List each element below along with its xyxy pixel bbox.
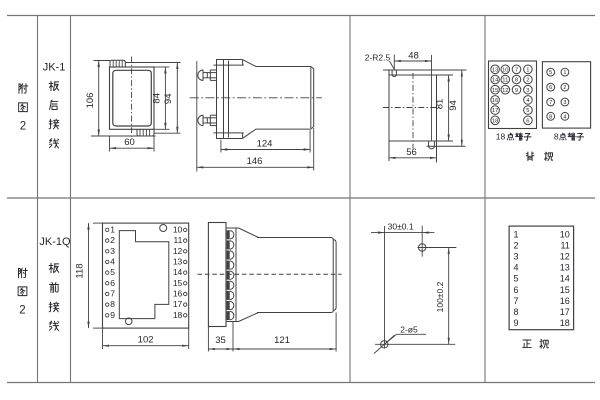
svg-text:5: 5: [514, 274, 519, 284]
svg-text:2: 2: [19, 305, 25, 317]
svg-text:7: 7: [515, 67, 518, 73]
svg-text:11: 11: [502, 78, 508, 84]
svg-text:JK-1: JK-1: [43, 62, 66, 74]
svg-text:102: 102: [138, 335, 154, 346]
svg-text:4: 4: [563, 114, 566, 120]
svg-text:18: 18: [560, 318, 570, 328]
svg-text:48: 48: [408, 51, 419, 62]
svg-text:3: 3: [563, 100, 566, 106]
svg-text:15: 15: [560, 285, 570, 295]
svg-text:JK-1Q: JK-1Q: [39, 236, 71, 248]
svg-text:14: 14: [173, 267, 183, 277]
svg-text:17: 17: [560, 307, 570, 317]
svg-text:81: 81: [435, 99, 446, 110]
svg-text:9: 9: [514, 318, 519, 328]
svg-text:9: 9: [110, 310, 115, 320]
svg-text:5: 5: [526, 108, 529, 114]
svg-text:6: 6: [514, 285, 519, 295]
svg-text:11: 11: [560, 240, 569, 250]
svg-text:1: 1: [526, 67, 529, 73]
svg-text:12: 12: [173, 246, 183, 256]
svg-text:8: 8: [515, 78, 518, 84]
svg-text:2: 2: [563, 85, 566, 91]
svg-text:8: 8: [554, 132, 559, 142]
svg-text:7: 7: [549, 100, 552, 106]
svg-text:100±0.2: 100±0.2: [435, 281, 445, 312]
svg-text:2-ø5: 2-ø5: [400, 325, 418, 335]
svg-text:2-R2.5: 2-R2.5: [365, 53, 391, 63]
svg-text:14: 14: [492, 78, 499, 84]
svg-text:118: 118: [74, 263, 85, 278]
svg-text:16: 16: [173, 289, 183, 299]
svg-text:2: 2: [526, 78, 529, 84]
svg-text:1: 1: [110, 225, 115, 235]
svg-text:18: 18: [173, 310, 183, 320]
svg-text:4: 4: [110, 257, 115, 267]
svg-text:3: 3: [514, 252, 519, 262]
svg-text:6: 6: [549, 85, 552, 91]
svg-text:8: 8: [549, 114, 552, 120]
svg-text:9: 9: [515, 88, 518, 94]
svg-text:5: 5: [549, 70, 552, 76]
svg-text:1: 1: [563, 70, 566, 76]
svg-text:3: 3: [526, 88, 529, 94]
svg-text:35: 35: [215, 335, 226, 346]
svg-text:121: 121: [274, 335, 290, 346]
svg-text:2: 2: [110, 235, 115, 245]
svg-text:3: 3: [110, 246, 115, 256]
svg-text:13: 13: [560, 263, 570, 273]
svg-text:1: 1: [514, 229, 519, 239]
svg-text:17: 17: [173, 299, 183, 309]
svg-text:94: 94: [163, 94, 174, 105]
svg-text:56: 56: [406, 147, 417, 158]
svg-text:15: 15: [173, 278, 183, 288]
svg-text:13: 13: [173, 257, 183, 267]
svg-text:8: 8: [110, 299, 115, 309]
svg-text:2: 2: [20, 121, 26, 133]
svg-text:94: 94: [448, 100, 459, 111]
svg-text:84: 84: [151, 93, 162, 104]
svg-text:15: 15: [492, 88, 498, 94]
svg-text:5: 5: [110, 267, 115, 277]
svg-text:16: 16: [560, 296, 570, 306]
svg-text:8: 8: [514, 307, 519, 317]
svg-text:124: 124: [257, 138, 273, 149]
svg-text:2: 2: [514, 240, 519, 250]
svg-text:6: 6: [110, 278, 115, 288]
svg-text:7: 7: [110, 289, 115, 299]
svg-text:106: 106: [85, 93, 96, 109]
svg-text:12: 12: [560, 252, 570, 262]
svg-text:6: 6: [526, 118, 529, 124]
svg-text:18: 18: [496, 132, 506, 142]
svg-text:11: 11: [173, 235, 182, 245]
svg-text:14: 14: [560, 274, 570, 284]
svg-text:18: 18: [492, 118, 498, 124]
svg-text:7: 7: [514, 296, 519, 306]
svg-text:16: 16: [492, 98, 498, 104]
svg-text:12: 12: [502, 88, 508, 94]
svg-text:13: 13: [492, 67, 498, 73]
svg-text:146: 146: [247, 156, 263, 167]
svg-text:4: 4: [514, 263, 519, 273]
svg-text:10: 10: [173, 225, 183, 235]
svg-text:30±0.1: 30±0.1: [388, 221, 414, 231]
svg-text:10: 10: [502, 67, 508, 73]
svg-text:10: 10: [560, 229, 570, 239]
svg-text:60: 60: [124, 137, 135, 148]
svg-text:17: 17: [492, 108, 498, 114]
